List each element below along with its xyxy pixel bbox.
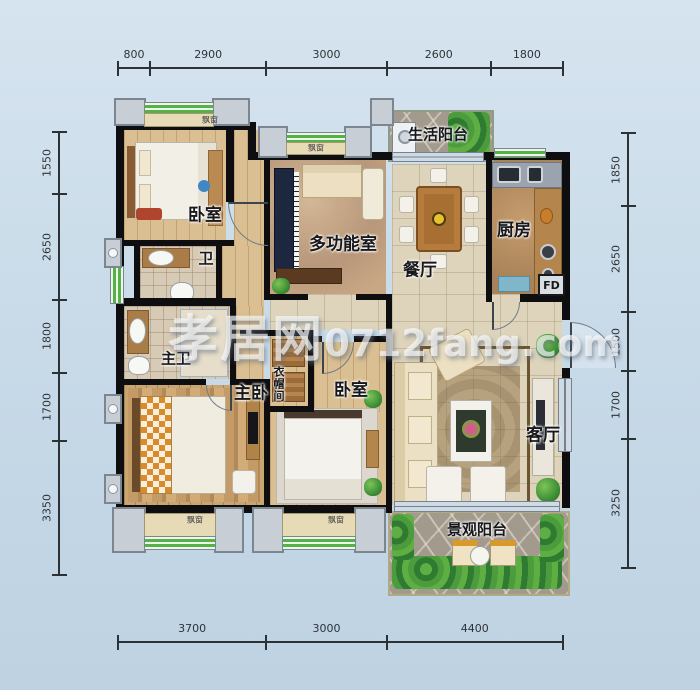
kitchen-window: [494, 148, 546, 158]
pier: [104, 394, 122, 424]
dimension-tick: [52, 193, 67, 195]
dimension-tick: [52, 574, 67, 576]
master-tv: [248, 412, 258, 444]
pier: [370, 98, 394, 126]
dimension-tick: [621, 205, 636, 207]
dimension-value: 1800: [41, 322, 54, 350]
dimension-value: 3000: [312, 622, 340, 635]
master-desk-chair: [232, 470, 256, 494]
dimension-tick: [52, 440, 67, 442]
bed1-pillow-1: [139, 150, 151, 176]
dimension-value: 1700: [41, 393, 54, 421]
multi-plant: [272, 278, 290, 294]
wall: [116, 122, 124, 513]
label-bedroom-2: 卧室: [334, 376, 368, 401]
bath-sink: [148, 250, 174, 266]
balcony-sliding-door-top: [392, 152, 484, 162]
living-window: [558, 378, 572, 452]
dimension-tick: [562, 635, 564, 650]
dimension-tick: [621, 311, 636, 313]
balcony-table: [470, 546, 490, 566]
label-view-balcony: 景观阳台: [447, 519, 507, 540]
living-stool-2: [470, 466, 506, 504]
dining-chair-1: [399, 196, 414, 213]
pier: [214, 507, 244, 553]
kitchen-mat: [498, 276, 530, 292]
pier: [354, 507, 386, 553]
label-dining: 餐厅: [403, 256, 437, 281]
dimension-tick: [52, 131, 67, 133]
bay-window-label-4: 飘窗: [328, 515, 344, 526]
dimension-value: 3350: [41, 494, 54, 522]
dimension-value: 2650: [41, 233, 54, 261]
dimension-tick: [117, 635, 119, 650]
floor-plan-canvas: 8002900300026001800 370030004400 1550265…: [0, 0, 700, 690]
pier: [104, 238, 122, 268]
label-cloakroom: 衣帽间: [270, 366, 286, 402]
watermark-brand: 孝居网: [168, 310, 324, 368]
dimension-value: 3700: [178, 622, 206, 635]
living-stool-1: [426, 466, 462, 504]
dimension-tick: [621, 438, 636, 440]
bed1-headboard: [127, 146, 135, 218]
dimension-line-left: 15502650180017003350: [58, 132, 60, 575]
wall: [134, 246, 140, 305]
bed1-red-throw: [136, 208, 162, 220]
dining-centerpiece: [432, 212, 446, 226]
dimension-tick: [621, 132, 636, 134]
label-master-bedroom: 主卧: [234, 379, 268, 404]
view-balcony-plants-right: [540, 514, 564, 562]
living-sofa-cushion-2: [408, 416, 432, 444]
bedroom2-side-table: [366, 430, 379, 468]
master-bay-sill: [144, 513, 216, 537]
dimension-tick: [562, 61, 564, 76]
wall: [216, 246, 222, 305]
dimension-value: 3000: [312, 48, 340, 61]
bedroom2-plant-2: [364, 478, 382, 496]
multi-sofa: [302, 164, 362, 198]
wall: [486, 160, 492, 302]
bath-window: [110, 266, 124, 304]
dimension-value: 3250: [610, 489, 623, 517]
bay-window-label-3: 飘窗: [187, 515, 203, 526]
stove-burner-1: [540, 244, 556, 260]
dimension-tick: [52, 372, 67, 374]
dimension-tick: [265, 635, 267, 650]
dining-chair-5: [430, 168, 447, 183]
dimension-tick: [52, 299, 67, 301]
multi-side-chair: [362, 168, 384, 220]
dimension-value: 1550: [41, 149, 54, 177]
label-living: 客厅: [526, 421, 560, 446]
dimension-line-right: 18502650150017003250: [627, 133, 629, 568]
pier-dot: [108, 484, 118, 494]
dimension-value: 2900: [194, 48, 222, 61]
flue-duct-box: FD: [538, 274, 565, 296]
wall: [226, 122, 234, 202]
dimension-value: 1800: [513, 48, 541, 61]
dimension-tick: [149, 61, 151, 76]
watermark: 孝居网0712fang.com: [168, 299, 621, 371]
dimension-tick: [621, 370, 636, 372]
dining-chair-3: [464, 196, 479, 213]
pier-dot: [108, 404, 118, 414]
balcony-sliding-door-bottom: [394, 501, 560, 512]
label-kitchen: 厨房: [497, 216, 531, 241]
pier: [112, 507, 146, 553]
pier: [104, 474, 122, 504]
wall: [116, 379, 206, 385]
dimension-value: 2600: [425, 48, 453, 61]
dining-chair-4: [464, 226, 479, 243]
coffee-table-flowers: [462, 420, 480, 438]
living-plant-bottom: [536, 478, 560, 502]
label-life-balcony: 生活阳台: [408, 124, 468, 145]
bed1-pillow-2: [139, 184, 151, 210]
watermark-domain: 0712fang.com: [324, 322, 621, 365]
bedroom1-chair: [198, 180, 210, 192]
dimension-value: 1850: [610, 156, 623, 184]
bedroom2-bay-sill: [282, 513, 356, 537]
flue-duct-label: FD: [543, 279, 560, 292]
bedroom2-bay-window: [282, 536, 356, 550]
view-balcony-plants-left: [392, 514, 414, 560]
living-sofa-cushion-1: [408, 372, 432, 400]
master-bath-toilet: [128, 356, 150, 375]
pier: [258, 126, 288, 158]
bay-window-label-2: 飘窗: [308, 143, 324, 154]
master-bath-sink: [129, 318, 146, 344]
master-bay-window: [144, 536, 216, 550]
pier-dot: [108, 248, 118, 258]
piano: [274, 168, 294, 272]
kitchen-sink-1: [497, 166, 521, 183]
bay-window-label-1: 飘窗: [202, 115, 218, 126]
pier: [344, 126, 372, 158]
dimension-line-bottom: 370030004400: [118, 641, 563, 643]
piano-keys: [294, 172, 299, 268]
kitchen-sink-2: [527, 166, 543, 183]
dimension-value: 800: [124, 48, 145, 61]
dimension-value: 1700: [610, 391, 623, 419]
wall: [264, 406, 314, 412]
dimension-tick: [265, 61, 267, 76]
pier: [114, 98, 146, 126]
pier: [252, 507, 284, 553]
label-multi-function: 多功能室: [309, 230, 377, 255]
master-bed-checker-quilt: [140, 396, 172, 494]
dimension-tick: [117, 61, 119, 76]
hall-wood-floor: [222, 246, 264, 306]
master-headboard: [132, 398, 140, 492]
dimension-line-top: 8002900300026001800: [118, 67, 563, 69]
kitchen-kettle: [540, 208, 553, 224]
dimension-tick: [621, 567, 636, 569]
dimension-value: 2650: [610, 245, 623, 273]
dimension-tick: [490, 61, 492, 76]
dimension-tick: [386, 61, 388, 76]
dimension-value: 4400: [461, 622, 489, 635]
dimension-tick: [386, 635, 388, 650]
balcony-chair-2: [490, 540, 516, 566]
label-bedroom-top: 卧室: [188, 201, 222, 226]
bed2: [284, 418, 362, 500]
dining-chair-2: [399, 226, 414, 243]
label-bath: 卫: [198, 248, 213, 269]
